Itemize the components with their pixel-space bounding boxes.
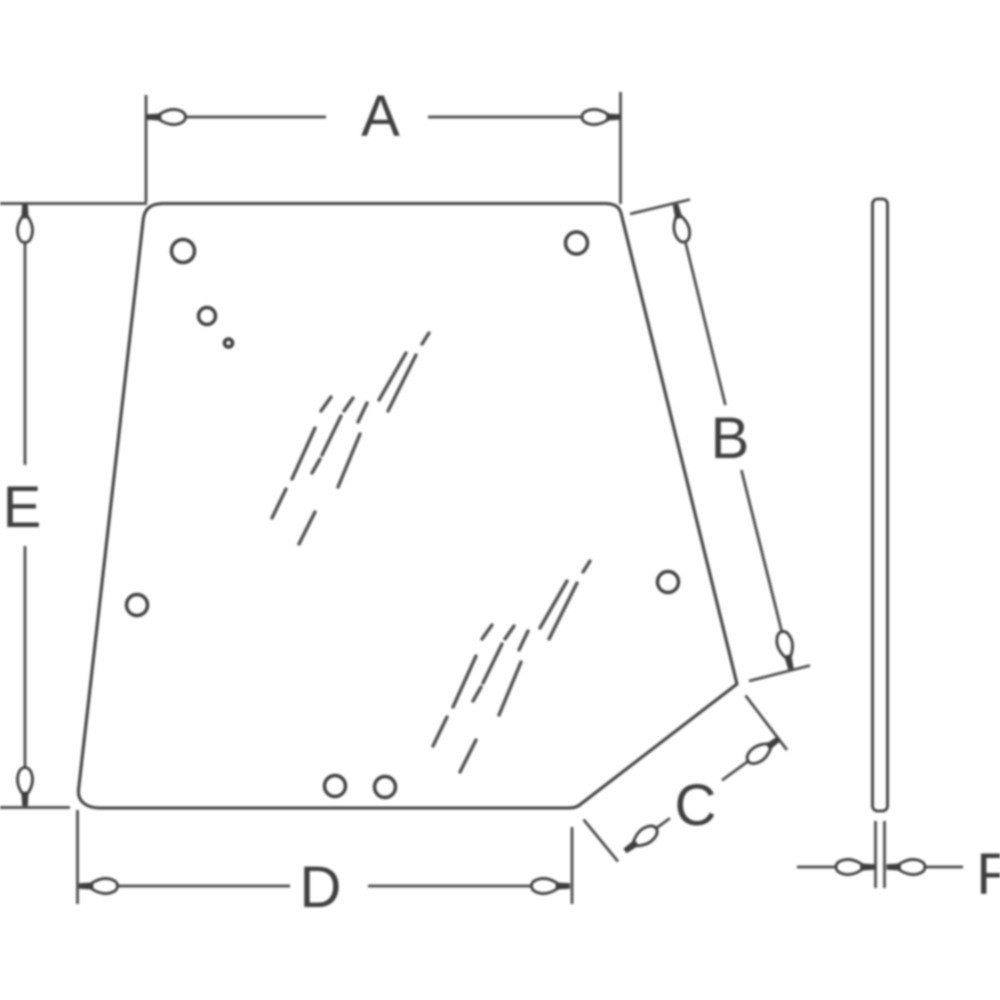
svg-text:B: B (711, 406, 750, 471)
svg-text:D: D (300, 855, 342, 920)
svg-text:A: A (361, 84, 400, 149)
svg-text:E: E (3, 475, 42, 540)
svg-text:C: C (675, 773, 717, 838)
svg-text:F: F (976, 842, 1000, 907)
